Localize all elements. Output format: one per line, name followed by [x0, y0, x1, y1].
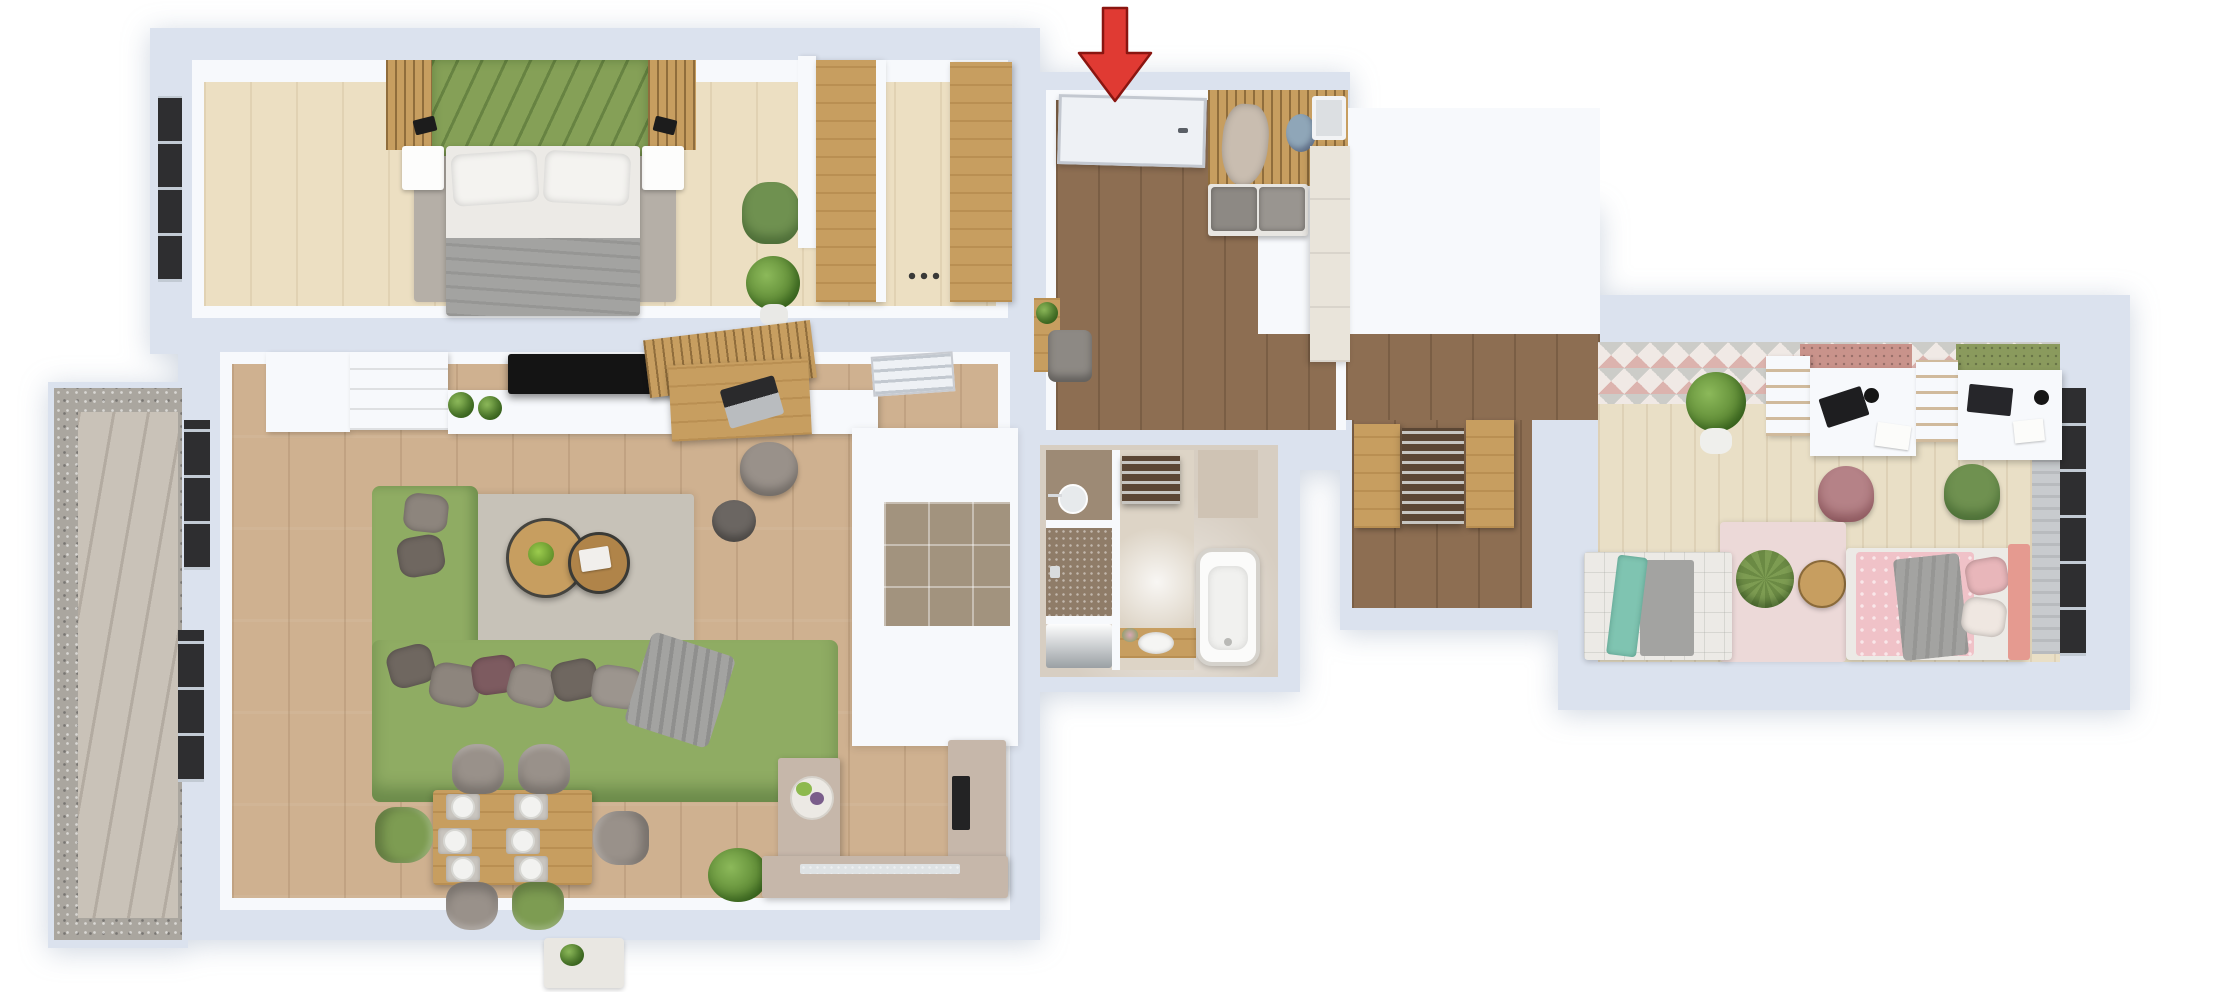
side-table-plant	[560, 944, 584, 966]
headboard-slat-panel-right	[648, 60, 696, 150]
place-setting	[446, 856, 480, 882]
entrance-door-handle	[1178, 128, 1188, 133]
place-setting	[506, 828, 540, 854]
bathroom-door	[1122, 456, 1180, 504]
entry-mirror	[1312, 96, 1346, 140]
closet-divider-wall	[798, 56, 816, 248]
countertop-basin	[1138, 632, 1174, 654]
basin-flowers	[1122, 628, 1138, 642]
magazine	[578, 546, 611, 572]
tv-lowboard	[448, 390, 878, 434]
vanity-round-mirror	[1058, 484, 1088, 514]
red-arrow-down-icon	[1075, 5, 1155, 105]
living-hall-door	[871, 351, 956, 397]
living-window-lower	[178, 630, 204, 782]
desk-chair	[740, 442, 798, 496]
vanity-faucet	[1048, 494, 1062, 497]
console-plant	[1036, 302, 1058, 324]
cooktop	[952, 776, 970, 830]
place-setting	[446, 794, 480, 820]
headboard-slat-panel-left	[386, 60, 432, 150]
wardrobe-left-door-edge	[876, 60, 886, 302]
kids-bed-right-frame	[2008, 544, 2030, 660]
plate	[519, 857, 543, 881]
kids-plant-pot	[1700, 428, 1732, 454]
gray-pouf	[712, 500, 756, 542]
vestibule-glazed-door	[1402, 428, 1464, 524]
living-window-upper	[184, 420, 210, 570]
kids-bookshelf-1	[1766, 356, 1810, 436]
bed-pillow	[450, 149, 539, 207]
washing-machine	[1046, 624, 1112, 668]
nightstand-left	[402, 146, 444, 190]
tv-shelf-unit	[350, 352, 448, 430]
kids-chair-pink	[1818, 466, 1874, 522]
vestibule-wardrobe-left	[1354, 424, 1400, 528]
kids-plant	[1686, 372, 1746, 432]
plate	[519, 795, 543, 819]
knitted-pouf	[1736, 550, 1794, 608]
dining-chair-green	[375, 807, 433, 863]
kitchen-pantry-tiles	[884, 502, 1010, 626]
closet-shoes	[906, 270, 940, 282]
bath-divider	[1046, 616, 1112, 624]
shower-control	[1050, 566, 1060, 578]
dining-chair-gray	[452, 744, 504, 794]
bedroom-window	[158, 96, 182, 282]
bath-niche	[1198, 450, 1258, 518]
kids-side-table	[1798, 560, 1846, 608]
vestibule-wardrobe-right	[1466, 420, 1514, 528]
plate	[443, 829, 467, 853]
tall-cream-cabinet	[1310, 146, 1350, 362]
apple-bowl	[528, 542, 554, 566]
kids-bed-pillow	[1960, 595, 2009, 639]
wardrobe-right	[950, 62, 1012, 302]
hall-pouf	[1048, 330, 1092, 382]
kids-chair-green	[1944, 464, 2000, 520]
living-floor-plant	[708, 848, 768, 902]
kids-bed-right-blanket-gray	[1893, 553, 1969, 661]
desk-lamp-1	[1864, 388, 1879, 403]
sofa-pillow	[402, 492, 450, 534]
double-bed	[446, 146, 640, 316]
bedroom-plant	[746, 256, 800, 310]
floor-plan	[0, 0, 2222, 992]
bed-pillow	[543, 150, 632, 206]
kids-bookshelf-2	[1916, 360, 1958, 442]
desk-papers	[1874, 422, 1911, 450]
tv-plant-2	[478, 396, 502, 420]
dining-chair-gray	[518, 744, 570, 794]
wardrobe-left	[816, 60, 882, 302]
fruit	[796, 782, 812, 796]
kids-laptop-2	[1967, 384, 2014, 416]
dining-chair-gray	[446, 882, 498, 930]
place-setting	[514, 856, 548, 882]
bath-divider-vertical	[1112, 450, 1120, 670]
kids-window	[2060, 388, 2086, 656]
headboard-green-panel	[432, 60, 648, 156]
plate	[511, 829, 535, 853]
bench-cushion	[1211, 187, 1257, 231]
corridor-floor	[1346, 334, 1600, 420]
place-setting	[514, 794, 548, 820]
dining-chair-green	[512, 882, 564, 930]
kids-bed-left-blanket	[1640, 560, 1694, 656]
bed-blanket-gray	[446, 238, 640, 316]
dining-chair-gray	[593, 811, 649, 865]
plate	[451, 857, 475, 881]
desk-papers	[2013, 418, 2045, 443]
side-table	[544, 938, 624, 988]
nightstand-right	[642, 146, 684, 190]
plate	[451, 795, 475, 819]
desk-lamp-2	[2034, 390, 2049, 405]
place-setting	[438, 828, 472, 854]
bench-cushion	[1259, 187, 1305, 231]
fruit	[810, 792, 824, 805]
kitchen-sink-strip	[800, 864, 960, 874]
tv-tall-cabinet	[266, 352, 350, 432]
balcony-decking	[78, 412, 178, 918]
kitchen-counter-bottom	[762, 856, 1008, 898]
bathtub-drain	[1224, 638, 1232, 646]
bedroom-armchair	[742, 182, 800, 244]
tv-plant-1	[448, 392, 474, 418]
bath-divider	[1046, 520, 1112, 528]
